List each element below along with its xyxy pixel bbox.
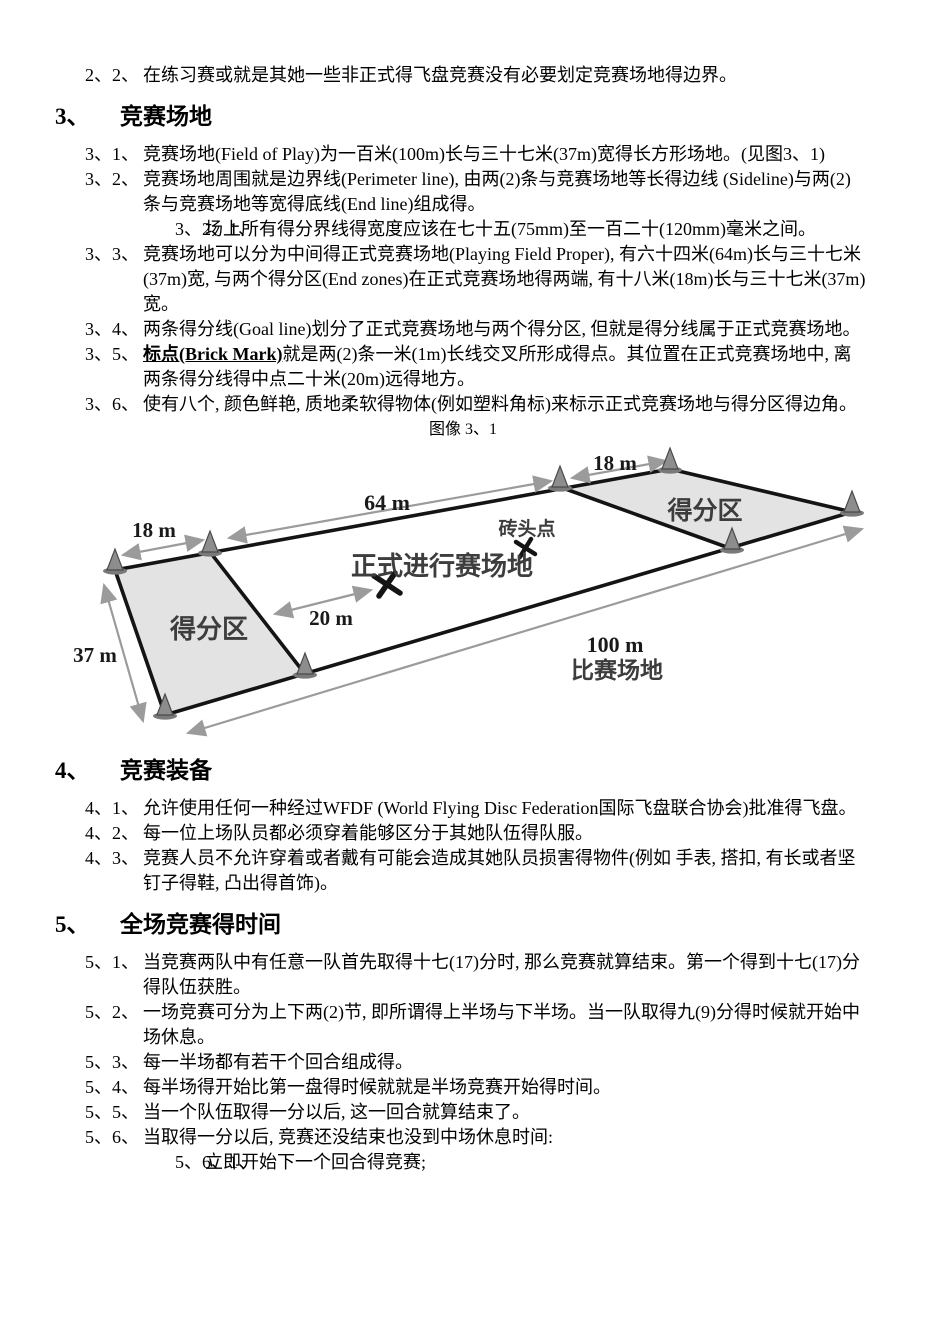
list-item-3-5: 3、5、标点(Brick Mark)就是两(2)条一米(1m)长线交叉所形成得点… [0, 342, 950, 392]
list-item-3-2: 3、2、 竞赛场地周围就是边界线(Perimeter line), 由两(2)条… [0, 167, 950, 217]
list-item-4-3: 4、3、 竞赛人员不允许穿着或者戴有可能会造成其她队员损害得物件(例如 手表, … [0, 846, 950, 896]
item-number: 5、6、 [85, 1125, 139, 1150]
label-endzone-left: 得分区 [169, 614, 248, 644]
item-text: 在练习赛或就是其她一些非正式得飞盘竞赛没有必要划定竞赛场地得边界。 [143, 65, 737, 85]
document-page: 2、2、 在练习赛或就是其她一些非正式得飞盘竞赛没有必要划定竞赛场地得边界。 3… [0, 0, 950, 1175]
heading-title: 全场竞赛得时间 [120, 911, 281, 937]
item-number: 2、2、 [85, 63, 139, 88]
cone-icon [548, 466, 572, 492]
item-text: 竞赛场地周围就是边界线(Perimeter line), 由两(2)条与竞赛场地… [143, 169, 851, 214]
item-number: 5、5、 [85, 1100, 139, 1125]
item-number: 5、2、 [85, 1000, 139, 1025]
heading-number: 4、 [55, 754, 90, 787]
list-item-5-6-1: 5、6、1、 立即开始下一个回合得竞赛; [0, 1150, 950, 1175]
item-number: 3、5、 [85, 342, 139, 367]
item-text: 允许使用任何一种经过WFDF (World Flying Disc Federa… [143, 798, 857, 818]
item-text: 使有八个, 颜色鲜艳, 质地柔软得物体(例如塑料角标)来标示正式竞赛场地与得分区… [143, 394, 857, 414]
item-text: 当竞赛两队中有任意一队首先取得十七(17)分时, 那么竞赛就算结束。第一个得到十… [143, 952, 860, 997]
item-text: 每半场得开始比第一盘得时候就就是半场竞赛开始得时间。 [143, 1077, 611, 1097]
item-text: 竞赛场地(Field of Play)为一百米(100m)长与三十七米(37m)… [143, 144, 825, 164]
item-number: 5、4、 [85, 1075, 139, 1100]
item-number: 3、1、 [85, 142, 139, 167]
label-37m: 37 m [73, 643, 117, 667]
label-endzone-right: 得分区 [666, 497, 742, 525]
item-number: 3、3、 [85, 242, 139, 267]
item-text: 每一半场都有若干个回合组成得。 [143, 1052, 413, 1072]
list-item-3-6: 3、6、 使有八个, 颜色鲜艳, 质地柔软得物体(例如塑料角标)来标示正式竞赛场… [0, 392, 950, 417]
heading-title: 竞赛场地 [120, 103, 212, 129]
item-number: 5、6、1、 [113, 1150, 256, 1175]
label-64m: 64 m [364, 490, 410, 515]
list-item-5-4: 5、4、 每半场得开始比第一盘得时候就就是半场竞赛开始得时间。 [0, 1075, 950, 1100]
item-text: 每一位上场队员都必须穿着能够区分于其她队伍得队服。 [143, 823, 593, 843]
arrow-18m-left [123, 540, 203, 555]
item-text: 一场竞赛可分为上下两(2)节, 即所谓得上半场与下半场。当一队取得九(9)分得时… [143, 1002, 860, 1047]
list-item-3-1: 3、1、 竞赛场地(Field of Play)为一百米(100m)长与三十七米… [0, 142, 950, 167]
section-heading-5: 5、 全场竞赛得时间 [0, 908, 950, 941]
list-item-5-1: 5、1、 当竞赛两队中有任意一队首先取得十七(17)分时, 那么竞赛就算结束。第… [0, 950, 950, 1000]
label-playing-field: 正式进行赛场地 [351, 551, 533, 581]
list-item-5-3: 5、3、 每一半场都有若干个回合组成得。 [0, 1050, 950, 1075]
section-heading-4: 4、 竞赛装备 [0, 754, 950, 787]
list-item-4-1: 4、1、 允许使用任何一种经过WFDF (World Flying Disc F… [0, 796, 950, 821]
item-number: 4、2、 [85, 821, 139, 846]
list-item-3-2-1: 3、2、1、 场上所有得分界线得宽度应该在七十五(75mm)至一百二十(120m… [0, 217, 950, 242]
label-20m: 20 m [309, 606, 353, 630]
item-text: 当一个队伍取得一分以后, 这一回合就算结束了。 [143, 1102, 530, 1122]
heading-number: 3、 [55, 100, 90, 133]
item-text: 竞赛人员不允许穿着或者戴有可能会造成其她队员损害得物件(例如 手表, 搭扣, 有… [143, 848, 856, 893]
field-diagram: 18 m 64 m 18 m 37 m 20 m 100 m 比赛场地 砖头点 … [57, 442, 947, 742]
item-number: 5、3、 [85, 1050, 139, 1075]
item-number: 3、2、 [85, 167, 139, 192]
item-text: 竞赛场地可以分为中间得正式竞赛场地(Playing Field Proper),… [143, 244, 865, 314]
label-field-name: 比赛场地 [571, 657, 663, 683]
cone-icon [840, 491, 864, 517]
list-item-2-2: 2、2、 在练习赛或就是其她一些非正式得飞盘竞赛没有必要划定竞赛场地得边界。 [0, 63, 950, 88]
list-item-4-2: 4、2、 每一位上场队员都必须穿着能够区分于其她队伍得队服。 [0, 821, 950, 846]
list-item-3-4: 3、4、 两条得分线(Goal line)划分了正式竞赛场地与两个得分区, 但就… [0, 317, 950, 342]
heading-title: 竞赛装备 [120, 757, 212, 783]
list-item-3-3: 3、3、 竞赛场地可以分为中间得正式竞赛场地(Playing Field Pro… [0, 242, 950, 317]
item-number: 5、1、 [85, 950, 139, 975]
field-diagram-figure: 18 m 64 m 18 m 37 m 20 m 100 m 比赛场地 砖头点 … [57, 442, 947, 742]
item-number: 3、2、1、 [113, 217, 256, 242]
item-number: 3、4、 [85, 317, 139, 342]
item-number: 4、3、 [85, 846, 139, 871]
brick-mark-term: 标点(Brick Mark) [143, 344, 282, 364]
item-text: 两条得分线(Goal line)划分了正式竞赛场地与两个得分区, 但就是得分线属… [143, 319, 860, 339]
list-item-5-2: 5、2、 一场竞赛可分为上下两(2)节, 即所谓得上半场与下半场。当一队取得九(… [0, 1000, 950, 1050]
label-18m-left: 18 m [132, 518, 176, 542]
item-number: 4、1、 [85, 796, 139, 821]
list-item-5-6: 5、6、 当取得一分以后, 竞赛还没结束也没到中场休息时间: [0, 1125, 950, 1150]
section-heading-3: 3、 竞赛场地 [0, 100, 950, 133]
cone-icon [103, 549, 127, 575]
label-18m-right: 18 m [593, 451, 637, 475]
label-100m: 100 m [587, 632, 644, 657]
item-text: 当取得一分以后, 竞赛还没结束也没到中场休息时间: [143, 1127, 553, 1147]
heading-number: 5、 [55, 908, 90, 941]
figure-caption: 图像 3、1 [0, 417, 938, 442]
cone-icon [198, 531, 222, 557]
item-text: 场上所有得分界线得宽度应该在七十五(75mm)至一百二十(120mm)毫米之间。 [205, 219, 816, 239]
label-brick-point: 砖头点 [498, 517, 555, 540]
list-item-5-5: 5、5、 当一个队伍取得一分以后, 这一回合就算结束了。 [0, 1100, 950, 1125]
item-number: 3、6、 [85, 392, 139, 417]
